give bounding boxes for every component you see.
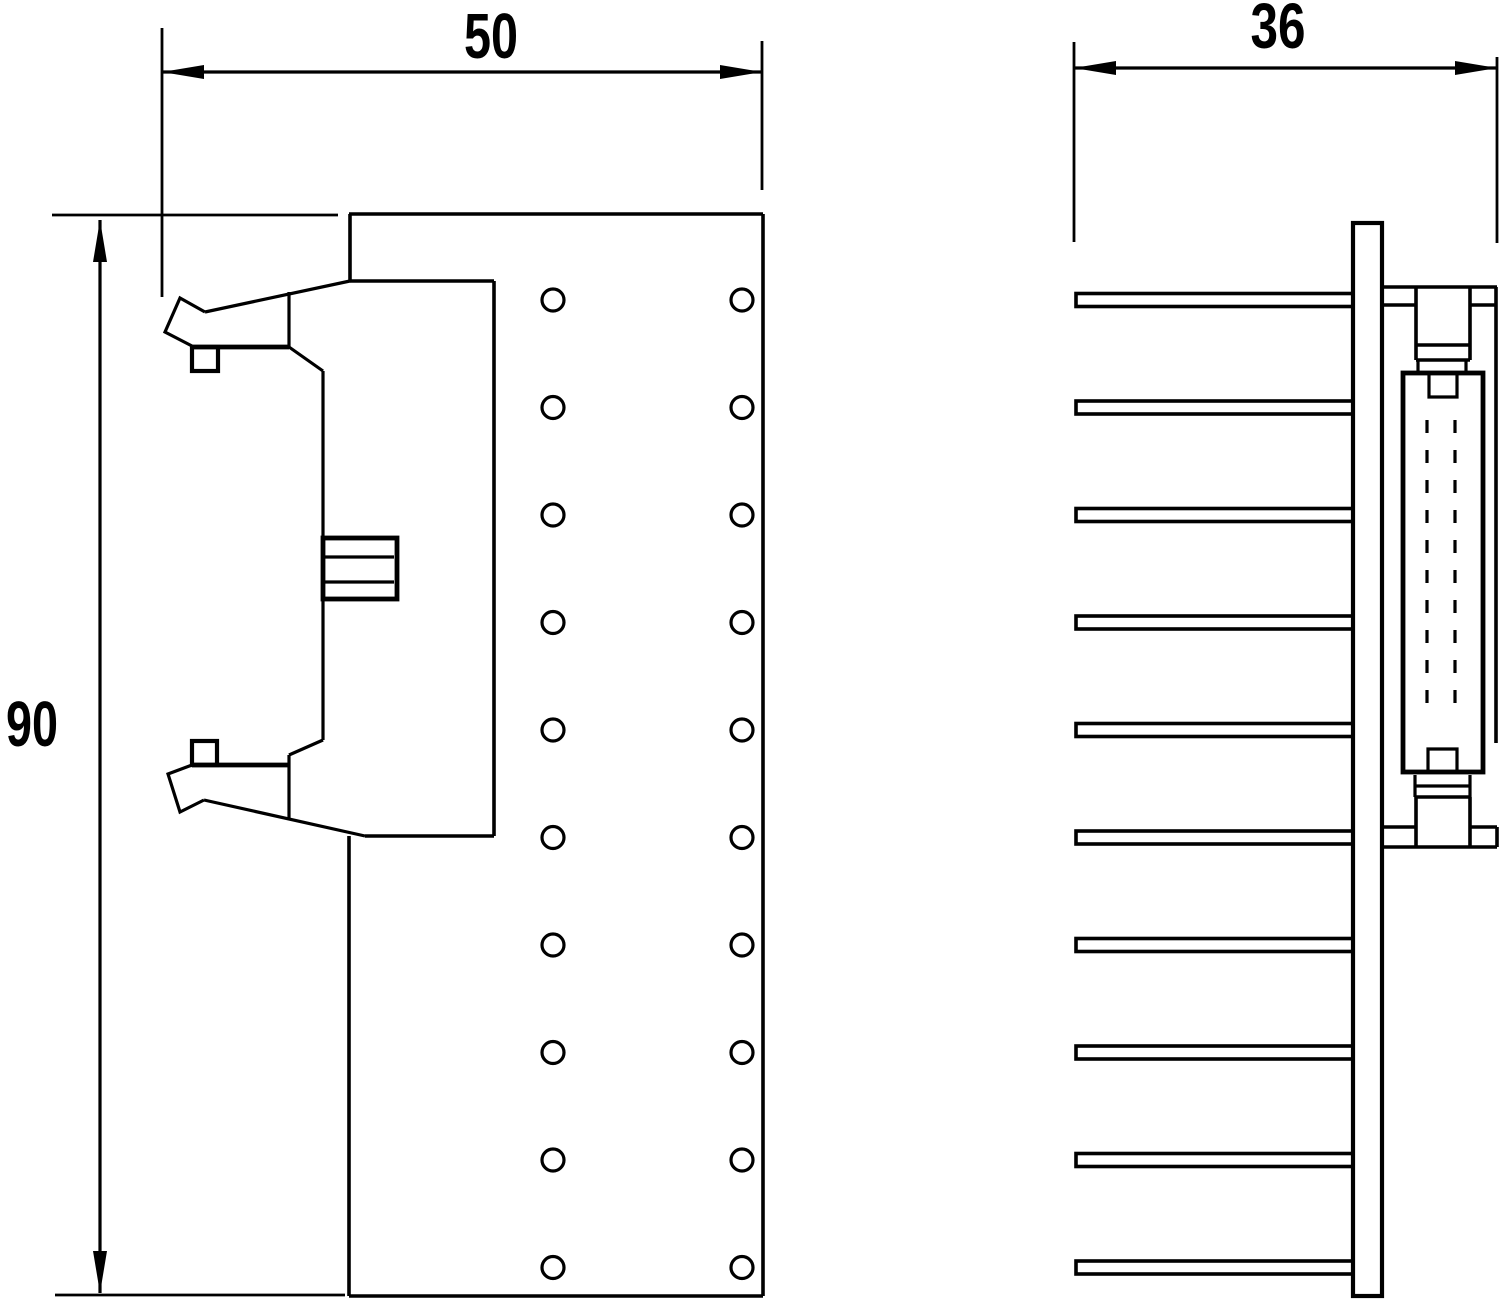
clip-spring-window [323, 538, 397, 599]
plate-hole [542, 827, 564, 849]
dim-width: 50 [162, 0, 762, 297]
connector-pin [1076, 724, 1353, 737]
pin-rows [1076, 294, 1353, 1275]
din-rail-clip [165, 281, 494, 836]
plate-hole [542, 1149, 564, 1171]
front-view: 50 90 [6, 0, 763, 1296]
plate-hole [731, 827, 753, 849]
connector-pin [1076, 1046, 1353, 1059]
plate-hole [542, 504, 564, 526]
dim-height: 90 [6, 215, 345, 1295]
clip-top-arm-diagonal [205, 281, 350, 312]
connector-pin [1076, 294, 1353, 307]
arrow-up-icon [93, 220, 107, 262]
connector-assembly [1382, 287, 1497, 847]
dim-label-height: 90 [6, 688, 58, 760]
connector-pin [1076, 939, 1353, 952]
connector-pin [1076, 401, 1353, 414]
plate-hole [542, 1257, 564, 1279]
top-keyway-notch [1429, 373, 1457, 397]
connector-pin [1076, 1261, 1353, 1274]
plate-hole [542, 719, 564, 741]
clip-bottom-step [289, 740, 323, 755]
mounting-plate-outline [349, 214, 763, 1296]
clip-bottom-hook [168, 765, 204, 812]
plate-hole [731, 504, 753, 526]
clip-bottom-latch-tab [192, 741, 217, 765]
plate-hole [542, 289, 564, 311]
connector-pin [1076, 616, 1353, 629]
dim-label-width: 36 [1251, 0, 1306, 62]
plate-hole [542, 1042, 564, 1064]
side-view: 36 [1074, 0, 1497, 1296]
plate-hole [731, 934, 753, 956]
plate-hole [731, 397, 753, 419]
plate-hole [731, 612, 753, 634]
arrow-left-icon [1074, 61, 1116, 75]
arrow-left-icon [162, 65, 204, 79]
arrow-right-icon [720, 65, 762, 79]
plate-hole [731, 1042, 753, 1064]
bottom-keyway-notch [1428, 749, 1457, 772]
connector-body [1403, 373, 1483, 772]
technical-drawing: 50 90 [0, 0, 1500, 1307]
clip-top-latch-tab [192, 347, 218, 371]
plate-hole [731, 289, 753, 311]
clip-top-step [289, 347, 323, 371]
dim-label-width: 50 [464, 0, 518, 72]
drawing-canvas: 50 90 [0, 0, 1500, 1307]
arrow-down-icon [93, 1251, 107, 1293]
plate-hole [542, 397, 564, 419]
plate-hole [731, 1149, 753, 1171]
plate-hole [731, 1257, 753, 1279]
plate-hole [731, 719, 753, 741]
plate-hole [542, 934, 564, 956]
connector-pin [1076, 509, 1353, 522]
connector-pin [1076, 831, 1353, 844]
hole-grid [542, 289, 753, 1279]
clip-top-hook [165, 298, 205, 346]
connector-pin [1076, 1154, 1353, 1167]
plate-edge-bar [1353, 223, 1382, 1296]
arrow-right-icon [1455, 61, 1497, 75]
plate-hole [542, 612, 564, 634]
dim-width: 36 [1074, 0, 1497, 243]
clip-bottom-arm-diagonal [204, 800, 365, 836]
